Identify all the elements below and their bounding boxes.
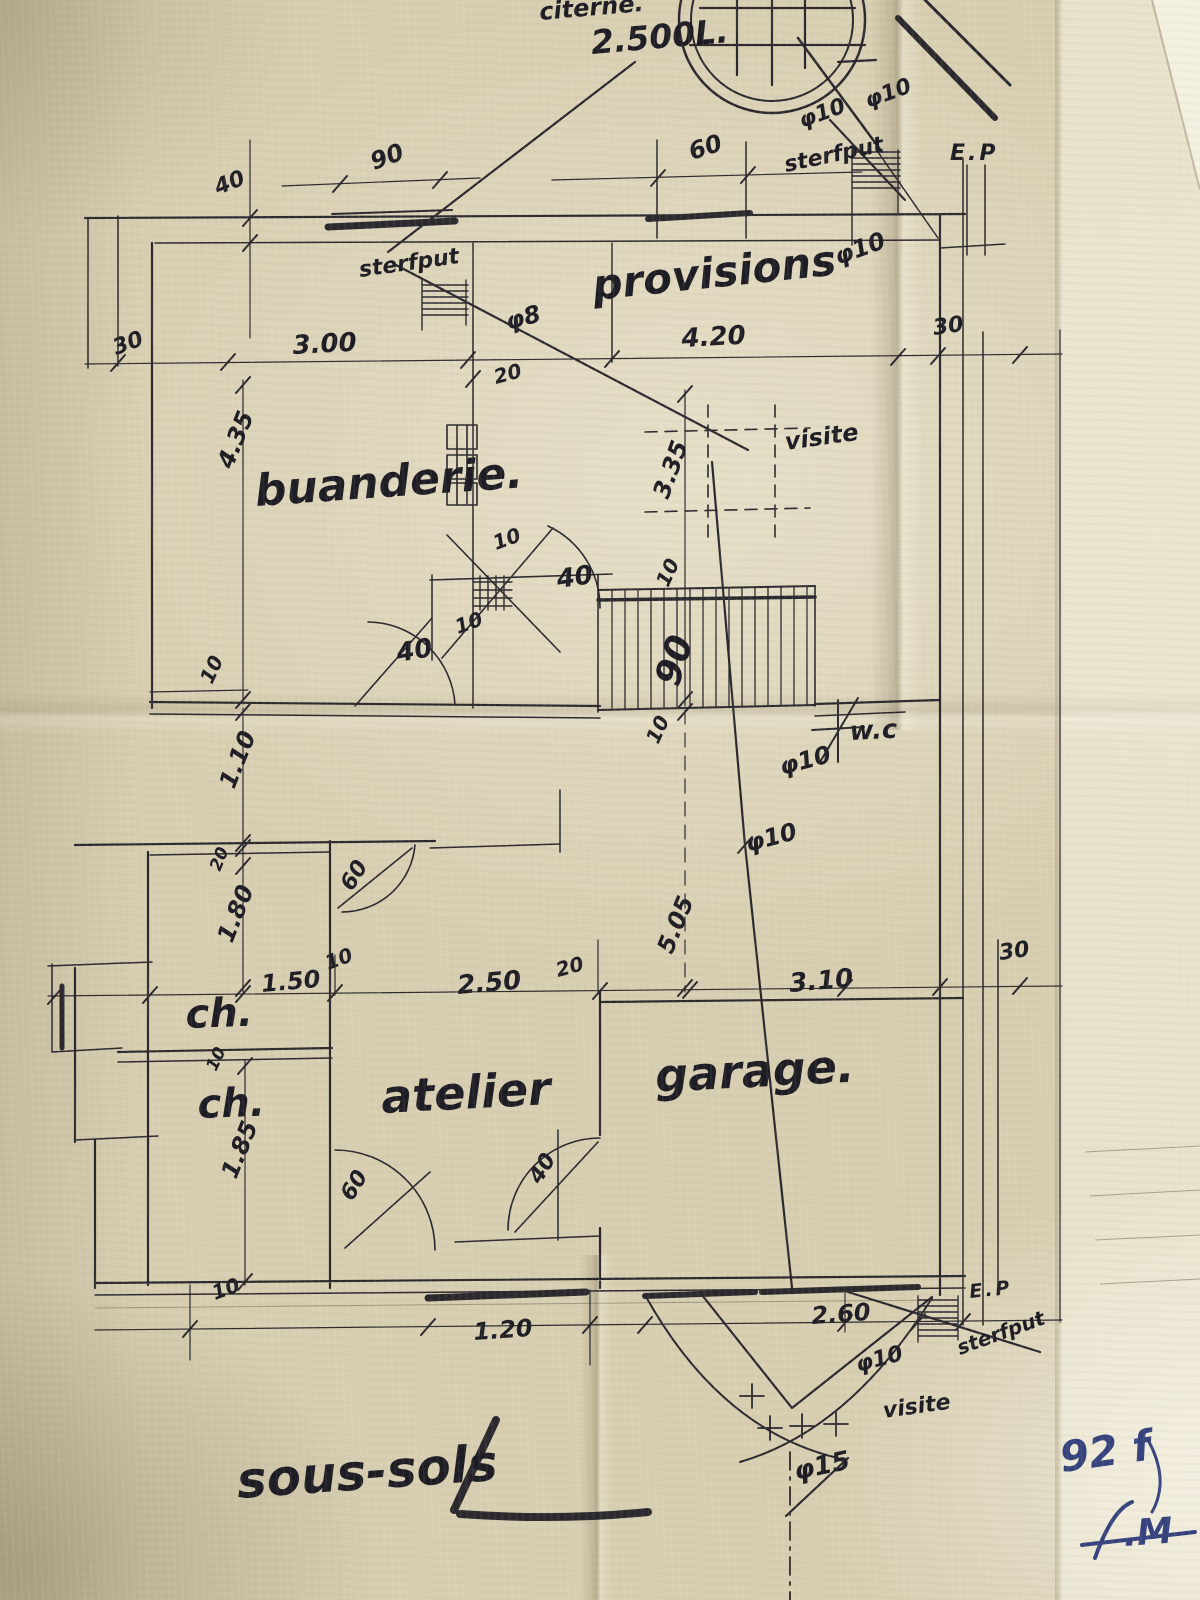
drain-label-visite-top: visite: [783, 418, 860, 456]
paper-creases: [0, 0, 1200, 1600]
dim-label: 30: [931, 312, 965, 341]
dim-label: 40: [210, 166, 249, 201]
pipe-label-phi15: φ15: [791, 1446, 853, 1487]
dim-label: 90: [366, 138, 407, 176]
dim-label: 40: [523, 1149, 561, 1189]
drain-label-ep-bottom: E.P: [968, 1277, 1013, 1303]
dim-label: 60: [685, 129, 725, 166]
dim-label: 3.10: [788, 963, 855, 998]
pipe-label-phi10: φ10: [776, 740, 834, 781]
dim-label: 10: [651, 555, 685, 590]
pipe-label-phi10: φ10: [853, 1341, 906, 1378]
drain-label-sterfput-mid: sterfput: [357, 244, 462, 283]
room-label-ch-upper: ch.: [185, 990, 254, 1038]
pencil-lines: [95, 1146, 1200, 1308]
room-label-ch-lower: ch.: [197, 1080, 266, 1128]
dim-label: 3.35: [647, 437, 694, 502]
floor-plan-svg: citerne. 2.500L. provisions buanderie. a…: [0, 0, 1200, 1600]
room-label-garage: garage.: [654, 1039, 856, 1103]
dim-label: 3.00: [292, 328, 358, 361]
dim-label: 1.20: [472, 1314, 533, 1346]
dim-label: 1.80: [212, 881, 260, 946]
room-label-provisions: provisions: [589, 236, 838, 310]
dim-label: 4.20: [680, 321, 747, 354]
dim-label: 10: [202, 1044, 230, 1074]
dim-label: 5.05: [652, 892, 700, 957]
dim-label: 10: [490, 523, 524, 555]
dim-label: 30: [997, 937, 1031, 966]
dim-label: 90: [648, 630, 702, 690]
room-label-atelier: atelier: [380, 1061, 556, 1124]
dim-label: 60: [336, 856, 373, 895]
visite-bottom-marks: [740, 1384, 848, 1440]
pipe-label-phi8: φ8: [502, 300, 544, 336]
pipe-label-phi10: φ10: [742, 817, 800, 858]
staircase: [474, 575, 815, 712]
dim-label: 10: [195, 652, 229, 687]
dim-label: 40: [554, 560, 595, 595]
dim-label: 20: [491, 358, 524, 388]
dim-label: 20: [553, 951, 586, 981]
paper-sheet: citerne. 2.500L. provisions buanderie. a…: [0, 0, 1200, 1600]
pipe-label-phi10: φ10: [796, 94, 849, 134]
dim-label: 10: [322, 943, 356, 975]
dim-label: 40: [393, 633, 435, 669]
dim-label: 30: [110, 327, 147, 361]
dim-label: 60: [336, 1166, 373, 1205]
dim-label: 4.35: [211, 407, 260, 473]
note-signature: .M: [1122, 1511, 1174, 1555]
drain-label-visite-bottom: visite: [881, 1390, 952, 1424]
dim-label: 1.50: [260, 965, 321, 998]
dim-label: 1.10: [214, 727, 262, 792]
drain-label-ep-top: E.P: [950, 141, 999, 166]
dim-label: 2.60: [810, 1298, 871, 1330]
dim-label: 10: [209, 1273, 243, 1305]
plan-linework: [48, 0, 1062, 1600]
dim-label: 2.50: [456, 965, 523, 1000]
room-label-wc: w.c: [849, 715, 899, 747]
room-label-buanderie: buanderie.: [253, 447, 524, 517]
dim-label: 20: [206, 844, 233, 874]
